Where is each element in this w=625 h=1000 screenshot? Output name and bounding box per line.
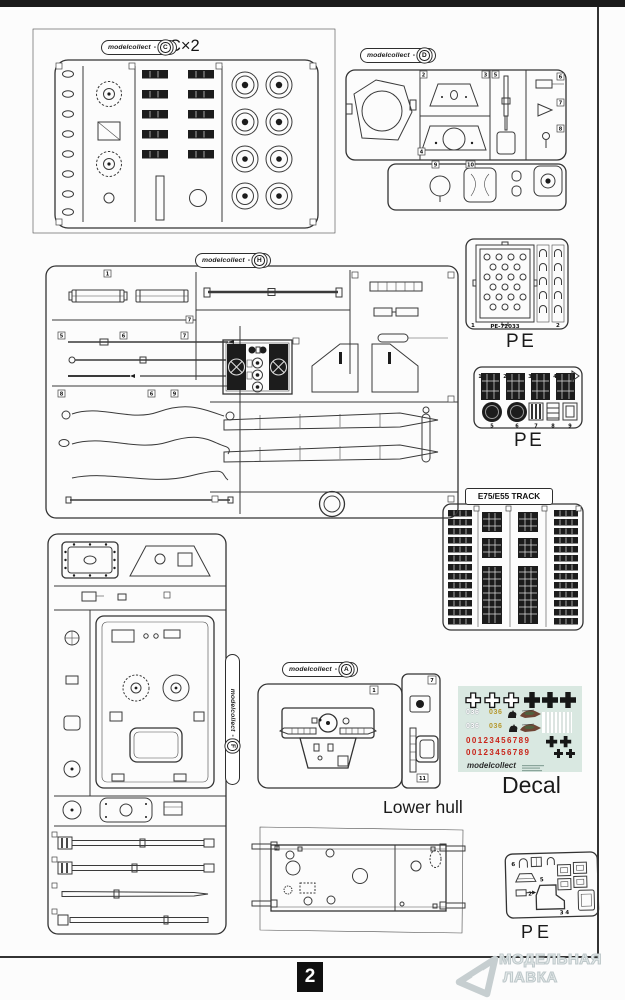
decal-sheet: 036 036 036 036 00123456789 00123456789 … — [458, 686, 582, 772]
decal-emblem-icon — [508, 710, 516, 718]
part-number: 2 — [503, 374, 507, 380]
sprue-f-letter-badge: F — [227, 741, 238, 752]
brand-text: modelcollect — [289, 666, 332, 673]
label-dash: - — [335, 666, 337, 673]
part-number: 8 — [559, 127, 563, 133]
decal-number-white: 036 — [466, 709, 479, 716]
brand-text: modelcollect — [202, 257, 245, 264]
pe-fret-main-drawing: 1 2 PE-72033 — [464, 236, 572, 334]
pe-fret-mesh: 1 2 3 4 5 6 7 8 9 — [472, 365, 586, 431]
sprue-a: modelcollect - A 1 — [254, 660, 444, 794]
part-number: 8 — [551, 424, 555, 430]
part-number: 7 — [183, 334, 187, 340]
part-number: 2 — [556, 323, 560, 329]
pe-caption: PE — [521, 922, 553, 943]
sprue-h-letter-badge: H — [254, 255, 265, 266]
part-number: 6 — [511, 862, 515, 868]
part-number: 2 — [422, 73, 426, 79]
sprue-d: modelcollect - D — [340, 44, 570, 214]
lower-hull-drawing-wrap — [250, 816, 472, 942]
pe-fret-small-drawing: 6 5 2 3 4 — [503, 850, 603, 927]
part-number: 2 — [528, 892, 532, 898]
part-number: 9 — [173, 392, 177, 398]
label-dash: - — [413, 52, 415, 59]
lower-hull-drawing — [250, 816, 472, 942]
sprue-c-drawing — [30, 26, 338, 236]
sprue-h-label: modelcollect - H — [195, 253, 271, 268]
part-number: 5 — [60, 334, 64, 340]
part-number: 5 — [490, 424, 494, 430]
sprue-h-drawing: 1 7 5 6 7 8 6 9 — [40, 246, 464, 524]
part-number: 4 — [553, 374, 557, 380]
part-number: 10 — [467, 163, 474, 169]
part-number: 5 — [540, 877, 544, 883]
decal-digits-red: 00123456789 — [466, 737, 530, 745]
pe-caption: PE — [514, 430, 544, 452]
brand-text: modelcollect — [367, 52, 410, 59]
part-number: 7 — [534, 424, 538, 430]
decal-number-yellow: 036 — [489, 709, 502, 716]
part-number: 6 — [515, 424, 519, 430]
part-number: 1 — [372, 688, 376, 694]
track-label: E75/E55 TRACK — [465, 488, 553, 505]
part-number: 11 — [419, 776, 426, 782]
instruction-page: modelcollect - C C×2 — [0, 0, 625, 1000]
part-number: 1 — [478, 374, 482, 380]
pe-fret-small: 6 5 2 3 4 — [503, 850, 603, 927]
sprue-a-letter-badge: A — [341, 664, 352, 675]
decal-number-yellow: 036 — [489, 723, 502, 730]
brand-text: modelcollect — [229, 689, 236, 732]
part-number: 3 — [484, 73, 488, 79]
sprue-c-label: modelcollect - C — [101, 40, 177, 55]
scan-top-bar — [0, 0, 625, 7]
pe-fret-mesh-drawing: 1 2 3 4 5 6 7 8 9 — [472, 365, 586, 431]
part-number: 6 — [559, 75, 563, 81]
sprue-d-label: modelcollect - D — [360, 48, 436, 63]
label-dash: - — [154, 44, 156, 51]
sprue-d-drawing: 2 3 5 6 7 8 4 9 10 — [340, 44, 570, 214]
watermark-text-line1: МОДЕЛЬНАЯ — [499, 951, 602, 968]
part-number: 6 — [122, 334, 126, 340]
part-number: 4 — [420, 150, 424, 156]
part-number: 7 — [188, 318, 192, 324]
label-dash: - — [229, 734, 236, 736]
decal-number-white: 036 — [466, 723, 479, 730]
decal-caption: Decal — [502, 772, 561, 799]
watermark-text-line2: ЛАВКА — [503, 969, 558, 986]
page-border-right — [597, 7, 599, 957]
watermark-logo-icon — [452, 946, 502, 1000]
sprue-a-label: modelcollect - A — [282, 662, 358, 677]
part-number: 7 — [430, 678, 434, 684]
part-number: 3 4 — [560, 910, 570, 916]
brand-text: modelcollect — [108, 44, 151, 51]
pe-fret-main: 1 2 PE-72033 — [464, 236, 572, 334]
decal-brand: modelcollect — [467, 762, 516, 770]
decal-digits-red: 00123456789 — [466, 749, 530, 757]
part-number: 5 — [494, 73, 498, 79]
sprue-f-label: modelcollect - F — [225, 654, 240, 785]
sprue-a-drawing: 1 7 11 — [254, 660, 444, 794]
pe-fret-code: PE-72033 — [490, 324, 519, 330]
pe-caption: PE — [506, 331, 536, 353]
part-number: 9 — [568, 424, 572, 430]
sprue-d-letter-badge: D — [419, 50, 430, 61]
part-number: 3 — [528, 374, 532, 380]
decal-emblem-icon — [509, 724, 517, 732]
page-number: 2 — [297, 962, 323, 992]
label-dash: - — [248, 257, 250, 264]
part-number: 1 — [106, 272, 110, 278]
sprue-c: modelcollect - C C×2 — [30, 26, 338, 236]
lower-hull-label: Lower hull — [383, 797, 463, 818]
part-number: 1 — [471, 323, 475, 329]
part-number: 9 — [434, 163, 438, 169]
part-number: 6 — [150, 392, 154, 398]
sprue-h: modelcollect - H — [40, 246, 464, 524]
sprue-f: modelcollect - F — [44, 526, 284, 940]
sprue-c-letter-badge: C — [160, 42, 171, 53]
sprue-f-drawing — [44, 526, 240, 940]
part-number: 8 — [60, 392, 64, 398]
part-number: 7 — [559, 101, 563, 107]
